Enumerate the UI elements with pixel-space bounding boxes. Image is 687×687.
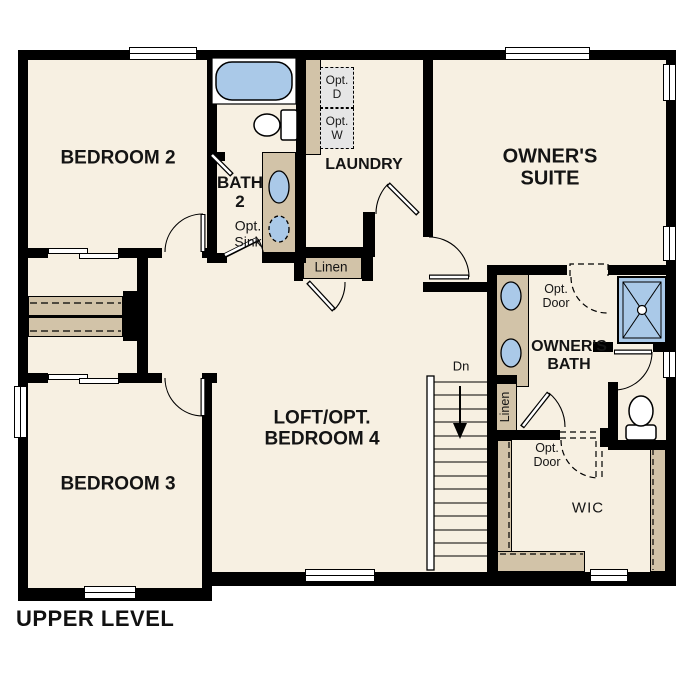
bedroom2-closet-bypass-door bbox=[79, 253, 119, 259]
window-wic-bottom bbox=[590, 569, 628, 582]
window-suite-right-1 bbox=[663, 64, 676, 101]
optional-washer-label: Opt. W bbox=[326, 115, 349, 141]
wall-suite-left bbox=[423, 54, 433, 237]
window-wc-right bbox=[663, 351, 676, 378]
owners-bath-label: OWNER'S BATH bbox=[531, 338, 607, 374]
wic-shelf-bottom bbox=[497, 551, 585, 572]
bedroom2-label: BEDROOM 2 bbox=[60, 147, 175, 168]
bath-linen-label: Linen bbox=[498, 392, 512, 423]
wall-ownersbath-top-a bbox=[487, 265, 567, 275]
wall-bath2-laundry bbox=[296, 54, 306, 257]
bath2-label: BATH 2 bbox=[217, 173, 263, 211]
wall-exterior-left bbox=[18, 50, 28, 601]
wall-exterior-right bbox=[666, 50, 676, 586]
plan-title: UPPER LEVEL bbox=[16, 606, 174, 632]
window-bedroom2-top bbox=[129, 47, 197, 60]
hall-linen-label: Linen bbox=[314, 259, 347, 274]
window-bedroom3-left bbox=[14, 386, 27, 438]
window-suite-top bbox=[505, 47, 590, 60]
owners-bath-vanity bbox=[496, 268, 529, 387]
wall-bath2-inner-stub bbox=[207, 152, 225, 161]
opt-door-label-bath: Opt. Door bbox=[542, 282, 569, 310]
bath2-vanity bbox=[262, 152, 296, 253]
wall-bath2-bottom-a bbox=[207, 253, 227, 263]
wall-linen-stub-right bbox=[362, 257, 373, 281]
optional-dryer-label: Opt. D bbox=[326, 74, 349, 100]
bedroom3-closet-bypass-door bbox=[79, 378, 119, 384]
wall-wc-bottom bbox=[608, 440, 676, 450]
window-suite-right-2 bbox=[663, 226, 676, 261]
bedroom3-label: BEDROOM 3 bbox=[60, 473, 175, 494]
window-bedroom3-bottom bbox=[84, 586, 136, 599]
optional-dryer: Opt. D bbox=[320, 67, 354, 108]
wic-label: WIC bbox=[572, 501, 604, 518]
bath2-opt-sink-label: Opt. Sink bbox=[234, 218, 261, 249]
wic-shelf-right bbox=[650, 447, 666, 572]
wall-linen-stub-left bbox=[294, 257, 303, 281]
wall-bathlinen-stub-top bbox=[492, 375, 517, 383]
opt-door-label-wic: Opt. Door bbox=[533, 441, 560, 469]
bedroom3-closet-shelf bbox=[28, 317, 123, 337]
laundry-label: LAUNDRY bbox=[325, 156, 403, 174]
wall-loft-ownersbath bbox=[487, 265, 497, 576]
wall-bedroom3-right bbox=[202, 373, 212, 590]
wall-bedroom3-top-b bbox=[118, 373, 162, 383]
stairs-dn-label: Dn bbox=[453, 360, 470, 375]
wall-closet-shelf-stub bbox=[123, 291, 148, 341]
floor-plan: Opt. D Opt. W bbox=[0, 0, 687, 687]
wall-bedroom2-bottom-a bbox=[28, 248, 48, 258]
wall-bathlinen-stub-bottom bbox=[492, 432, 530, 440]
wall-suite-bottom bbox=[423, 282, 497, 292]
wall-bedroom3-top-a bbox=[28, 373, 48, 383]
window-loft-bottom bbox=[305, 569, 375, 582]
optional-washer: Opt. W bbox=[320, 108, 354, 149]
wall-ownersbath-top-b bbox=[608, 265, 666, 275]
wall-laundry-jog bbox=[363, 212, 375, 257]
bedroom2-closet-shelf bbox=[28, 296, 123, 316]
owners-suite-label: OWNER'S SUITE bbox=[503, 146, 598, 191]
loft-label: LOFT/OPT. BEDROOM 4 bbox=[264, 408, 379, 451]
wall-wic-top-stub bbox=[600, 428, 613, 447]
